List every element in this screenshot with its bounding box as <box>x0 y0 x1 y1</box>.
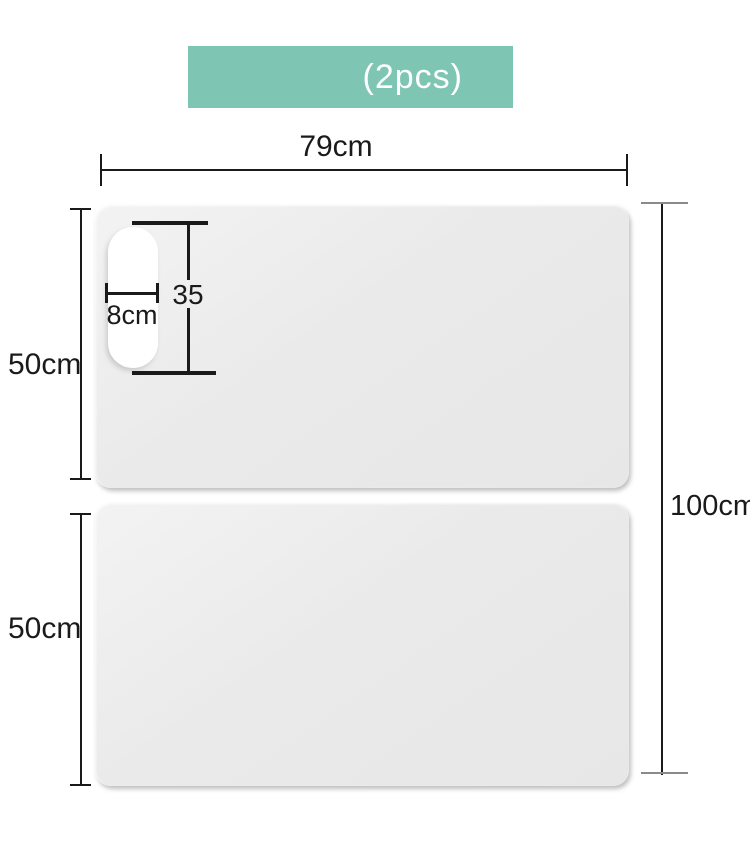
handle-hole <box>108 227 158 368</box>
bottom-panel-height-label: 50cm <box>8 614 81 644</box>
width-dimension-label: 79cm <box>276 132 396 162</box>
bottom-panel <box>95 503 629 786</box>
hole-height-line-upper <box>187 222 190 280</box>
top-panel-height-cap-top <box>70 208 91 210</box>
top-panel-height-label: 50cm <box>8 350 81 380</box>
total-height-cap-bottom <box>641 772 688 774</box>
width-dimension-tick-right <box>626 154 628 186</box>
hole-width-dimension-label: 8cm <box>100 302 164 329</box>
hole-width-dimension-line <box>106 292 159 295</box>
pcs-count-label: (2pcs) <box>363 60 463 94</box>
top-panel <box>95 205 629 488</box>
width-dimension-tick-left <box>100 154 102 186</box>
top-panel-height-line <box>80 209 82 480</box>
hole-height-dimension-label: 35 <box>168 281 208 309</box>
bottom-panel-height-line <box>80 514 82 786</box>
product-dimension-diagram: (2pcs) 79cm 8cm 35 50cm 50cm 100cm <box>0 0 750 848</box>
bottom-panel-height-cap-bottom <box>70 784 91 786</box>
hole-height-cap-bottom <box>132 371 216 375</box>
bottom-panel-height-cap-top <box>70 513 91 515</box>
hole-height-cap-top <box>132 221 208 225</box>
total-height-label: 100cm <box>670 492 750 521</box>
top-panel-height-cap-bottom <box>70 478 91 480</box>
hole-height-line-lower <box>187 308 190 374</box>
width-dimension-line <box>100 169 628 171</box>
total-height-line <box>661 203 663 775</box>
total-height-cap-top <box>641 202 688 204</box>
product-banner: (2pcs) <box>188 46 513 108</box>
